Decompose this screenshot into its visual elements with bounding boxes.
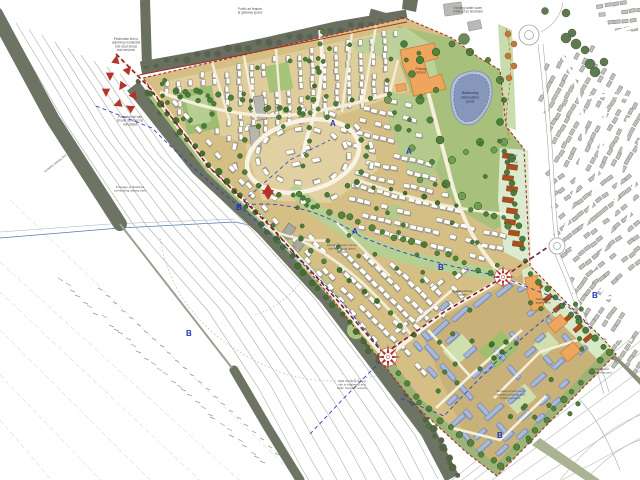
svg-text:Existing roadjunction improved: Existing roadjunction improved xyxy=(587,367,612,375)
svg-text:A: A xyxy=(406,147,412,156)
svg-text:B: B xyxy=(592,291,598,300)
svg-text:B: B xyxy=(438,263,444,272)
svg-text:Existing water towerretained a: Existing water towerretained as landmark xyxy=(453,6,483,14)
svg-text:New crossing linkingsite to br: New crossing linkingsite to bridleway an… xyxy=(337,379,368,390)
svg-text:B: B xyxy=(497,431,503,440)
svg-text:B: B xyxy=(186,329,192,338)
svg-text:B: B xyxy=(236,203,242,212)
svg-text:A: A xyxy=(330,119,336,128)
svg-text:Care homeapartments: Care homeapartments xyxy=(535,297,551,305)
svg-text:Frontage of dwellingsoverlooki: Frontage of dwellingsoverlooking railway… xyxy=(114,185,147,193)
svg-text:A: A xyxy=(352,227,358,236)
svg-text:Public art featureat gateway s: Public art featureat gateway space xyxy=(238,7,263,15)
svg-text:Primaryschool: Primaryschool xyxy=(416,67,427,75)
